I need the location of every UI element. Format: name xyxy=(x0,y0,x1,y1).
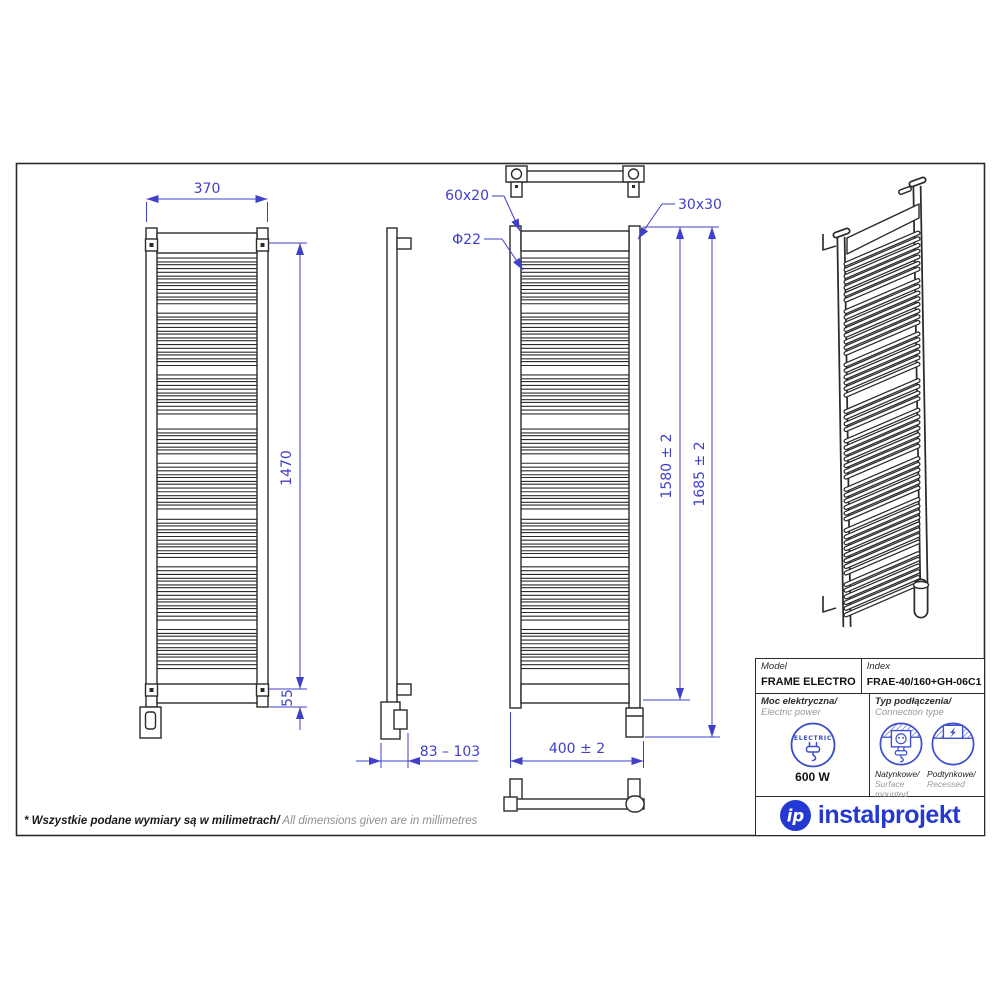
recessed-caption: Podtynkowe/Recessed xyxy=(927,769,976,789)
power-label: Moc elektryczna/ Electric power xyxy=(761,696,864,718)
radiator-technical-drawing: 370 1470 55 83 – 103 xyxy=(0,0,1000,1000)
dim-phi22: Φ22 xyxy=(452,232,481,248)
index-label: Index xyxy=(867,661,982,672)
dim-83-103: 83 – 103 xyxy=(420,744,480,760)
dim-400: 400 ± 2 xyxy=(549,741,605,757)
connection-type-cell: Typ podłączenia/Connection type xyxy=(870,694,984,796)
dim-30x30: 30x30 xyxy=(678,197,722,213)
spec-table: Model FRAME ELECTRO Index FRAE-40/160+GH… xyxy=(755,658,985,836)
instalprojekt-logo-text: instalprojekt xyxy=(818,801,960,830)
instalprojekt-logo-icon: ip xyxy=(780,800,811,831)
heating-element-3d xyxy=(914,582,929,589)
dim-55: 55 xyxy=(280,689,296,707)
technical-drawing-page: 370 1470 55 83 – 103 xyxy=(0,0,1000,1000)
electric-power-cell: Moc elektryczna/ Electric power ELECTRIC… xyxy=(756,694,870,796)
dim-1470: 1470 xyxy=(279,450,295,486)
brand-row: ip instalprojekt xyxy=(756,797,984,833)
surface-mounted-caption: Natynkowe/Surface mounted xyxy=(875,769,927,799)
index-cell: Index FRAE-40/160+GH-06C1 xyxy=(862,659,987,693)
dim-370: 370 xyxy=(194,181,221,197)
index-value: FRAE-40/160+GH-06C1 xyxy=(867,676,982,688)
dim-1580: 1580 ± 2 xyxy=(659,433,675,498)
svg-text:ip: ip xyxy=(787,806,805,825)
model-value: FRAME ELECTRO xyxy=(761,676,856,688)
svg-text:ELECTRIC: ELECTRIC xyxy=(793,735,831,742)
heating-element-middle xyxy=(626,708,643,737)
power-value: 600 W xyxy=(795,770,830,784)
connection-label: Typ podłączenia/Connection type xyxy=(875,696,979,718)
dim-1685: 1685 ± 2 xyxy=(692,441,708,506)
recessed-icon xyxy=(930,721,976,767)
dim-60x20: 60x20 xyxy=(445,188,489,204)
dimensions-footnote: * Wszystkie podane wymiary są w milimetr… xyxy=(24,815,477,827)
surface-mounted-icon xyxy=(878,721,924,767)
front-view-drawing xyxy=(140,228,269,738)
model-cell: Model FRAME ELECTRO xyxy=(756,659,862,693)
side-view-dimensions: 83 – 103 xyxy=(356,733,480,768)
side-view-drawing xyxy=(381,228,411,739)
perspective-view-drawing xyxy=(823,180,929,627)
top-view-drawing xyxy=(506,166,644,197)
front-view-element-drawing xyxy=(510,226,643,737)
model-label: Model xyxy=(761,661,856,672)
electric-icon: ELECTRIC xyxy=(789,721,837,769)
bottom-view-drawing xyxy=(504,779,644,812)
